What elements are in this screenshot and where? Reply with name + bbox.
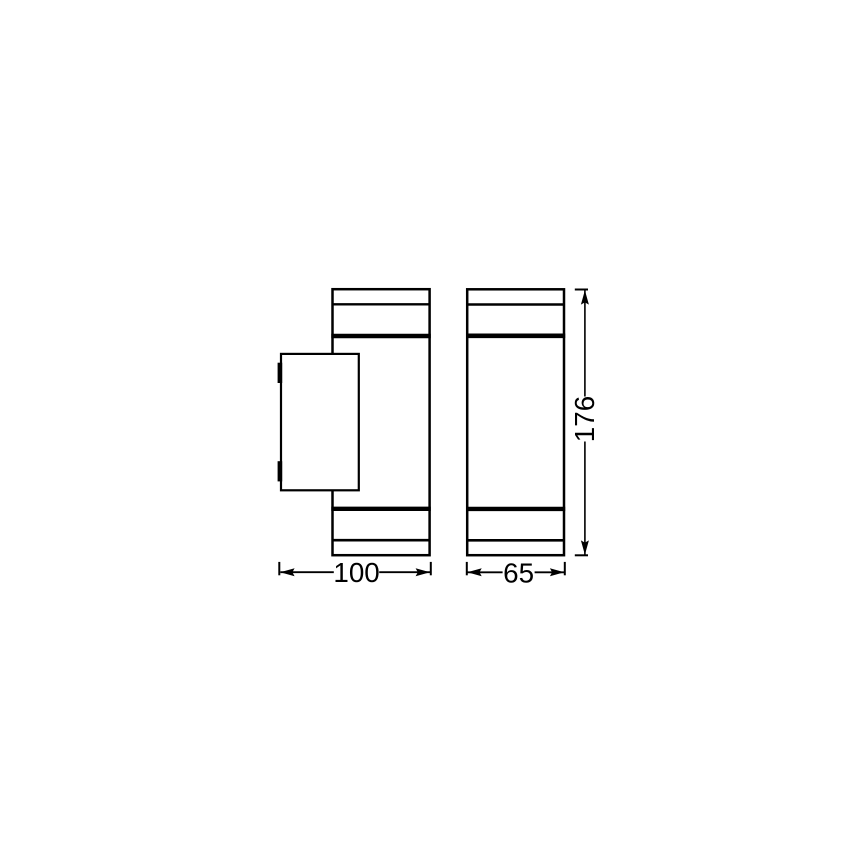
svg-text:65: 65 (503, 557, 534, 588)
svg-text:176: 176 (569, 396, 600, 442)
svg-text:100: 100 (333, 557, 379, 588)
